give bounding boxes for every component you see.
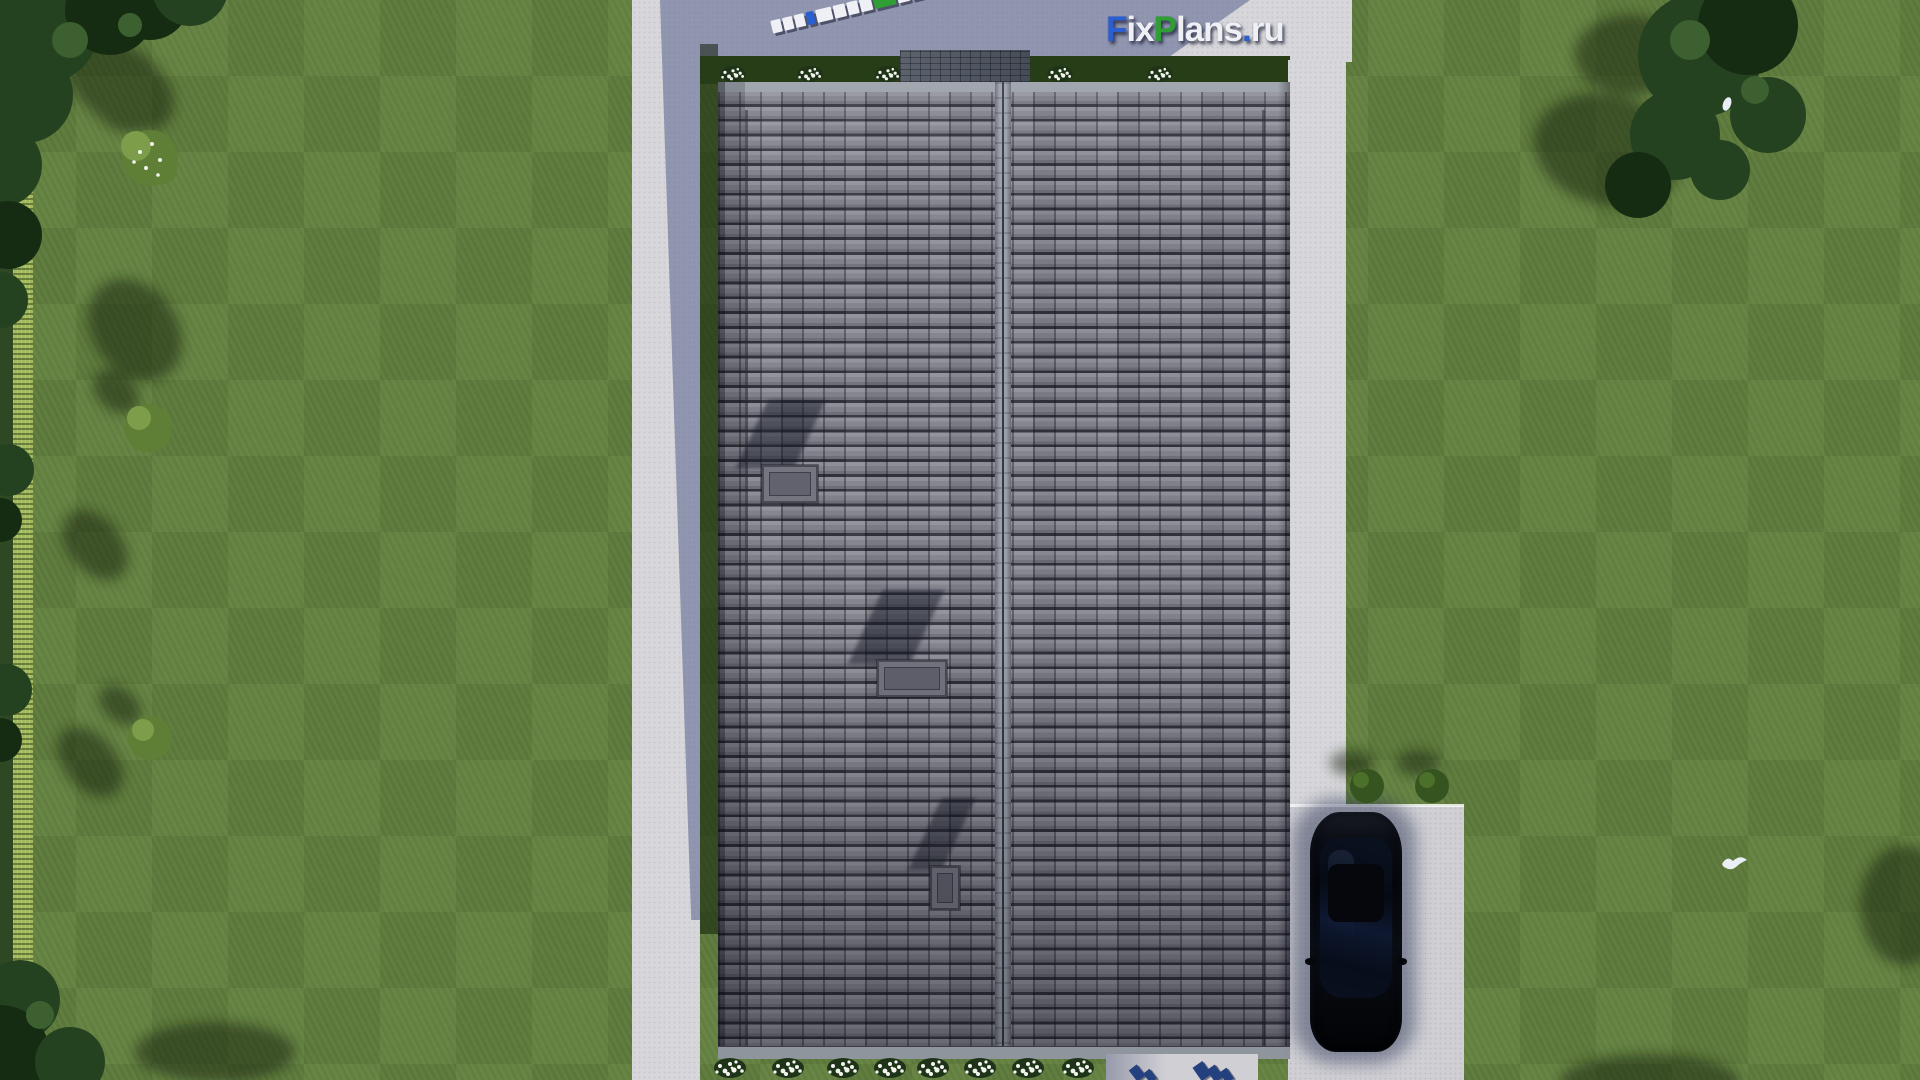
watermark-segment: F [1106, 10, 1126, 49]
watermark-segment: ru [1251, 10, 1284, 49]
birds [1721, 96, 1747, 869]
ground-logo-block [794, 13, 807, 28]
watermark-segment: P [1154, 10, 1176, 49]
watermark-segment: lans [1176, 10, 1242, 49]
ground-logo-block [846, 0, 860, 15]
watermark: FixPlans.ru [1106, 10, 1284, 50]
top-bed-flowers [720, 66, 1173, 82]
ground-logo-block [805, 11, 816, 26]
ground-logo-block [832, 3, 847, 18]
bottom-bed-flowers [714, 1058, 1094, 1078]
watermark-segment: . [1242, 10, 1251, 49]
flying-bird-icon [1722, 857, 1747, 869]
ground-logo-block [770, 19, 783, 34]
aerial-house-render: FixPlans.ru [0, 0, 1920, 1080]
watermark-segment: ix [1126, 10, 1153, 49]
lawn-bushes [121, 130, 1449, 803]
vegetation-layer [0, 0, 1920, 1080]
ground-logo-block [782, 16, 795, 31]
